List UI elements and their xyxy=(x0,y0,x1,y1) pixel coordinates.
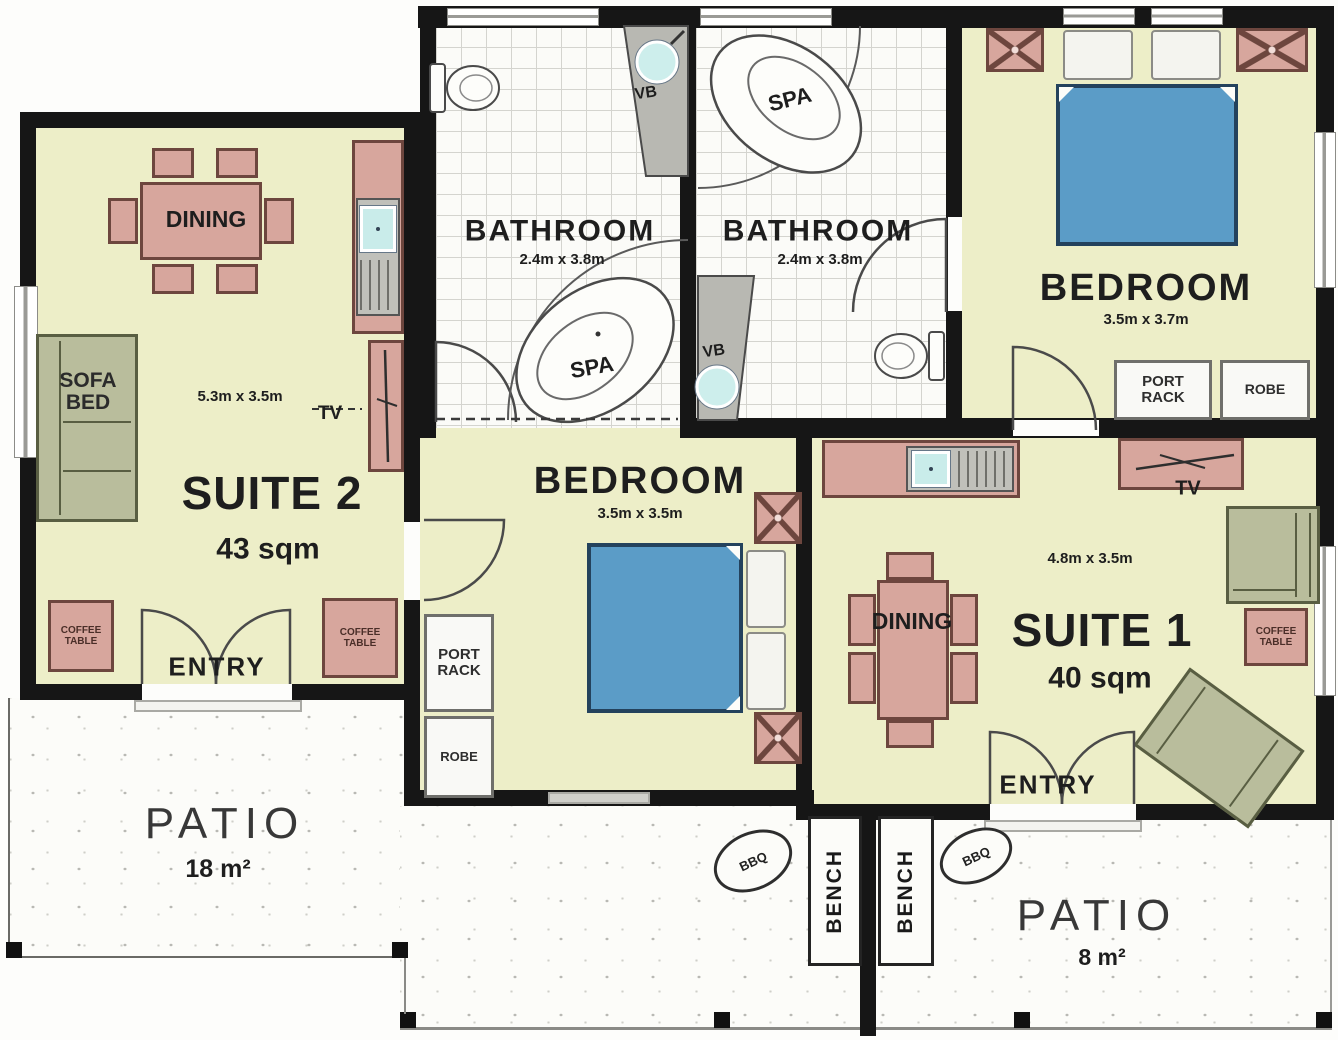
bathroom1-dims: 2.4m x 3.8m xyxy=(519,252,604,268)
bedroom2-dims: 3.5m x 3.5m xyxy=(597,506,682,522)
floor-plan: COFFEE TABLE COFFEE TABLE PORT RACK ROBE… xyxy=(0,0,1338,1040)
patio-right-name: PATIO xyxy=(1017,893,1178,939)
deck-post xyxy=(714,1012,730,1028)
bench: BENCH xyxy=(878,816,934,966)
wall-patio-divider xyxy=(860,812,876,1036)
bedroom1-window-right xyxy=(1151,8,1223,25)
bedroom2-robe: ROBE xyxy=(424,716,494,798)
deck-post xyxy=(1014,1012,1030,1028)
bathroom2-name: BATHROOM xyxy=(723,215,913,246)
bedside-table xyxy=(754,712,802,764)
wall-bathrooms-left xyxy=(420,6,436,438)
coffee-table: COFFEE TABLE xyxy=(322,598,398,678)
dining-chair xyxy=(264,198,294,244)
dining-chair xyxy=(848,652,876,704)
patio-post xyxy=(6,942,22,958)
bedroom1-name: BEDROOM xyxy=(1040,269,1252,309)
suite2-tv-label: TV xyxy=(318,404,342,424)
dining-chair xyxy=(950,594,978,646)
suite2-window xyxy=(14,286,38,458)
suite2-entry-opening xyxy=(142,684,292,700)
bedroom1-port-rack: PORT RACK xyxy=(1114,360,1212,420)
bathroom2-dims: 2.4m x 3.8m xyxy=(777,252,862,268)
wall-right xyxy=(1316,6,1334,820)
coffee-table: COFFEE TABLE xyxy=(1244,608,1308,666)
suite2-tv-unit xyxy=(368,340,404,472)
dining-chair xyxy=(108,198,138,244)
patio-left-area: 18 m² xyxy=(185,856,250,882)
suite1-drainer xyxy=(958,451,1006,487)
suite2-entry-label: ENTRY xyxy=(168,653,265,680)
patio-edge-line xyxy=(404,958,406,1014)
bathroom1-name: BATHROOM xyxy=(465,215,655,246)
suite1-entry-threshold xyxy=(984,820,1142,832)
deck-post xyxy=(400,1012,416,1028)
bathroom2-window xyxy=(700,8,832,26)
port-rack-label: PORT RACK xyxy=(1136,374,1190,406)
bedroom1-robe: ROBE xyxy=(1220,360,1310,420)
suite1-dining-table xyxy=(877,580,949,720)
robe-label: ROBE xyxy=(440,750,478,764)
bedroom1-bed xyxy=(1056,84,1238,246)
suite1-entry-label: ENTRY xyxy=(999,771,1096,798)
suite2-drainer xyxy=(360,260,396,310)
pillow xyxy=(1063,30,1133,80)
dining-chair xyxy=(216,148,258,178)
bedroom2-port-rack: PORT RACK xyxy=(424,614,494,712)
bedroom2-door-opening xyxy=(404,522,420,600)
bathroom2-vb-label: VB xyxy=(702,342,726,362)
bench-label: BENCH xyxy=(823,849,847,934)
robe-label: ROBE xyxy=(1245,382,1285,397)
dining-chair xyxy=(886,552,934,580)
dining-chair xyxy=(152,148,194,178)
suite2-dining-label: DINING xyxy=(166,208,247,232)
bedroom2-bed xyxy=(587,543,743,713)
suite2-area: 43 sqm xyxy=(216,533,319,564)
suite1-armchair xyxy=(1226,506,1320,604)
patio-right-area: 8 m² xyxy=(1078,946,1125,970)
bathroom1-window xyxy=(447,8,599,26)
suite1-entry-opening xyxy=(990,804,1136,820)
bedside-table xyxy=(1236,28,1308,72)
suite2-dims: 5.3m x 3.5m xyxy=(197,389,282,405)
bedside-table xyxy=(986,28,1044,72)
sofa-bed xyxy=(36,334,138,522)
sofa-bed-label: SOFA BED xyxy=(45,370,131,414)
dining-chair xyxy=(152,264,194,294)
bbq-label: BBQ xyxy=(960,843,993,869)
bbq-label: BBQ xyxy=(737,848,770,874)
patio-post xyxy=(392,942,408,958)
suite1-sink xyxy=(912,451,950,487)
coffee-table-label: COFFEE TABLE xyxy=(325,627,395,650)
coffee-table-label: COFFEE TABLE xyxy=(1247,626,1305,649)
suite2-name: SUITE 2 xyxy=(182,470,363,518)
bathroom2-door-opening xyxy=(948,217,962,311)
suite1-dining-label: DINING xyxy=(872,610,953,634)
deck-post xyxy=(1316,1012,1332,1028)
bench: BENCH xyxy=(808,816,862,966)
suite1-name: SUITE 1 xyxy=(1012,607,1193,655)
wall-mid-horizontal xyxy=(680,418,1332,438)
dining-chair xyxy=(886,720,934,748)
bedroom1-dims: 3.5m x 3.7m xyxy=(1103,312,1188,328)
bathroom1-vb-label: VB xyxy=(634,84,658,104)
patio-left-name: PATIO xyxy=(145,801,306,847)
pillow xyxy=(746,550,786,628)
wall-bathroom-divider xyxy=(680,6,696,438)
bedroom2-rear-threshold xyxy=(548,792,650,804)
suite2-entry-threshold xyxy=(134,700,302,712)
bedroom2-name: BEDROOM xyxy=(534,462,746,502)
bedside-table xyxy=(754,492,802,544)
suite2-sink xyxy=(360,206,396,252)
bench-label: BENCH xyxy=(894,849,918,934)
pillow xyxy=(746,632,786,710)
suite1-tv-label: TV xyxy=(1175,479,1201,500)
bedroom1-window-left xyxy=(1063,8,1135,25)
suite1-area: 40 sqm xyxy=(1048,662,1151,693)
suite1-dims: 4.8m x 3.5m xyxy=(1047,551,1132,567)
dining-chair xyxy=(950,652,978,704)
wall-suite2-right xyxy=(404,112,420,806)
bedroom1-side-window xyxy=(1314,132,1336,288)
pillow xyxy=(1151,30,1221,80)
wall-suite2-top xyxy=(20,112,420,128)
coffee-table: COFFEE TABLE xyxy=(48,600,114,672)
port-rack-label: PORT RACK xyxy=(427,647,491,679)
dining-chair xyxy=(216,264,258,294)
bedroom1-door-opening xyxy=(1013,420,1099,436)
coffee-table-label: COFFEE TABLE xyxy=(51,625,111,648)
